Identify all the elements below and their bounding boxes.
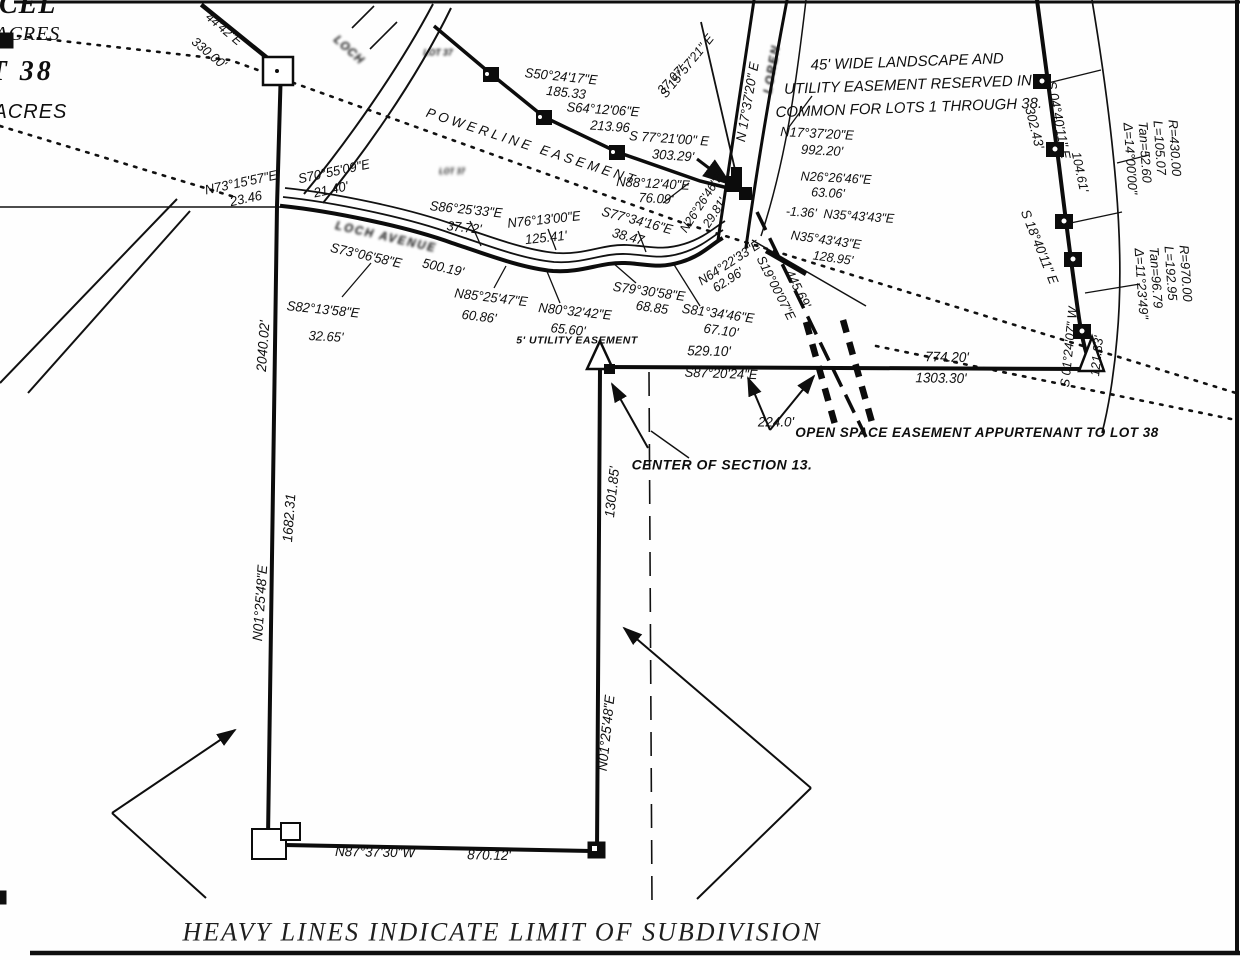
dist-6306: 63.06' [811, 185, 845, 200]
lot38-name: LOT 38 [0, 56, 620, 88]
remainder-parcel-area: 20.00 ACRES [0, 24, 620, 45]
dist-52910: 529.10' [687, 343, 731, 358]
plat-map-scan: 44'42"E330.00'S50°24'17"E185.33S64°12'06… [0, 0, 1240, 960]
bearing-n873730: N87°37'30"W [335, 844, 415, 860]
bearing-s872024: S87°20'24"E [684, 366, 757, 383]
curve-data-1: R=430.00L=105.07Tan=52.60Δ=14°00'00" [1121, 119, 1186, 195]
subdivision-limit-caption: HEAVY LINES INDICATE LIMIT OF SUBDIVISIO… [183, 918, 822, 945]
dist-7609: 76.09' [638, 191, 674, 207]
dist-204002: 2040.02' [254, 320, 272, 372]
landscape-easement-line2: UTILITY EASEMENT RESERVED IN [784, 72, 1032, 98]
remainder-parcel-name-line2: PARCEL [0, 0, 620, 21]
utility-easement-label: 5' UTILITY EASEMENT [516, 335, 637, 346]
section-line-dashed [649, 372, 652, 905]
dist-2240: 224.0' [758, 415, 794, 430]
dist-3265: 32.65' [308, 329, 344, 345]
landscape-easement-line1: 45' WIDE LANDSCAPE AND [810, 50, 1004, 74]
center-of-section-label: CENTER OF SECTION 13. [632, 458, 813, 473]
dist-77420: 774.20' [925, 349, 969, 364]
lot38-block: LOT 38 36.96 ACRES [0, 56, 620, 124]
remainder-parcel-block: REMAINDER PARCEL 20.00 ACRES [0, 0, 620, 45]
open-space-easement-label: OPEN SPACE EASEMENT APPURTENANT TO LOT 3… [795, 426, 1159, 440]
lot38-area: 36.96 ACRES [0, 101, 620, 124]
dist-87012: 870.12' [467, 847, 511, 862]
dist-168231: 1682.31 [280, 493, 298, 542]
landscape-easement-note: 45' WIDE LANDSCAPE ANDUTILITY EASEMENT R… [774, 46, 1043, 124]
dist-99220: 992.20' [801, 143, 844, 159]
dist-130330: 1303.30' [915, 370, 966, 386]
dist-30329: 303.29' [651, 147, 694, 164]
lot-marker-smudge-2: LOT 37 [439, 168, 465, 176]
curve-data-2: R=970.00L=192.95Tan=96.79Δ=11°23'49" [1132, 244, 1197, 319]
